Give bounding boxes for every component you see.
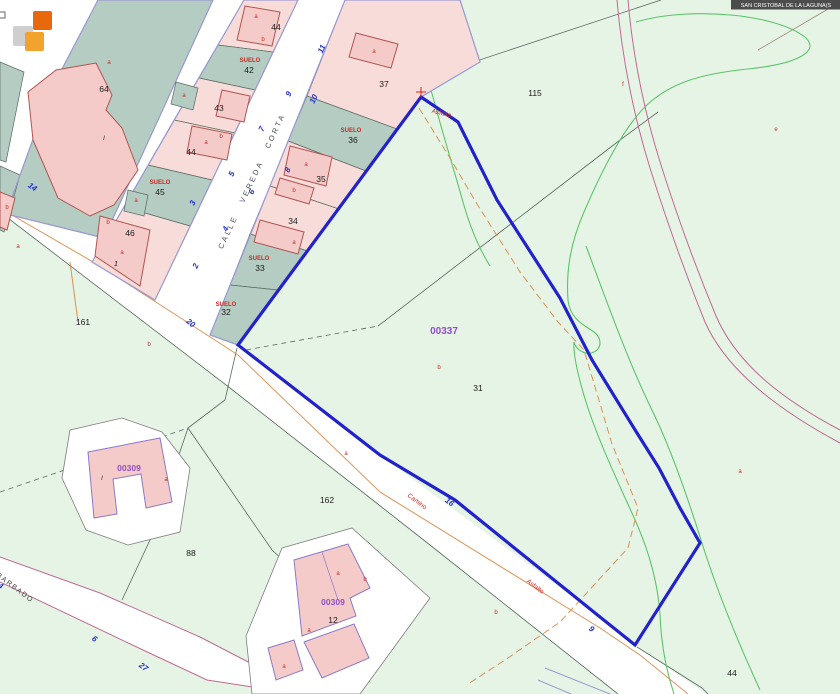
municipality-tag: SAN CRISTOBAL DE LA LAGUNA(S [741, 3, 832, 9]
suelo-label: SUELO [240, 58, 261, 64]
parcel-number-42: 42 [244, 65, 254, 75]
parcel-number-44-top: 44 [271, 22, 281, 32]
logo-square-orange-icon [33, 11, 52, 30]
cadastral-ref-00337: 00337 [430, 326, 458, 337]
cadastral-map-viewer: SAN CRISTOBAL DE LA LAGUNA(S CALLE VERED… [0, 0, 840, 694]
parcel-number-36: 36 [348, 135, 358, 145]
street-number-2: 2 [190, 262, 201, 271]
parcel-number-1: 1 [114, 259, 118, 268]
parcel-strip[interactable] [0, 62, 24, 162]
street-number-9b: 9 [587, 624, 596, 634]
parcel-number-46: 46 [125, 228, 135, 238]
parcel-number-35: 35 [316, 174, 326, 184]
parcel-number-32: 32 [221, 307, 231, 317]
cadastral-map-canvas[interactable]: SAN CRISTOBAL DE LA LAGUNA(S CALLE VERED… [0, 0, 840, 694]
parcel-number-43: 43 [214, 103, 224, 113]
suelo-label: SUELO [341, 128, 362, 134]
parcel-number-12: 12 [328, 615, 338, 625]
road-label-asfalto: Asfalto [525, 578, 545, 596]
logo [0, 11, 52, 51]
parcel-number-64: 64 [99, 84, 109, 94]
logo-square-amber-icon [25, 32, 44, 51]
parcel-number-161: 161 [76, 317, 90, 327]
road-label-camino: Camino [406, 492, 428, 511]
suelo-label: SUELO [150, 180, 171, 186]
parcel-number-115: 115 [528, 88, 542, 98]
parcel-number-33: 33 [255, 263, 265, 273]
cadastral-ref-00309-b: 00309 [321, 597, 345, 607]
parcel-number-34: 34 [288, 216, 298, 226]
parcel-number-162: 162 [320, 495, 334, 505]
suelo-label: SUELO [216, 302, 237, 308]
corner-square-icon [0, 12, 5, 18]
street-number-7: 7 [257, 125, 267, 133]
suelo-label: SUELO [249, 256, 270, 262]
street-number-5: 5 [227, 170, 237, 178]
parcel-number-44: 44 [186, 147, 196, 157]
sub-letter-a: a [344, 451, 348, 457]
street-number-9: 9 [284, 90, 294, 98]
parcel-number-37: 37 [379, 79, 389, 89]
parcel-number-88: 88 [186, 548, 196, 558]
parcel-number-44-br: 44 [727, 668, 737, 678]
parcel-number-45: 45 [155, 187, 165, 197]
parcel-number-31: 31 [473, 383, 483, 393]
cadastral-ref-00309-a: 00309 [117, 463, 141, 473]
